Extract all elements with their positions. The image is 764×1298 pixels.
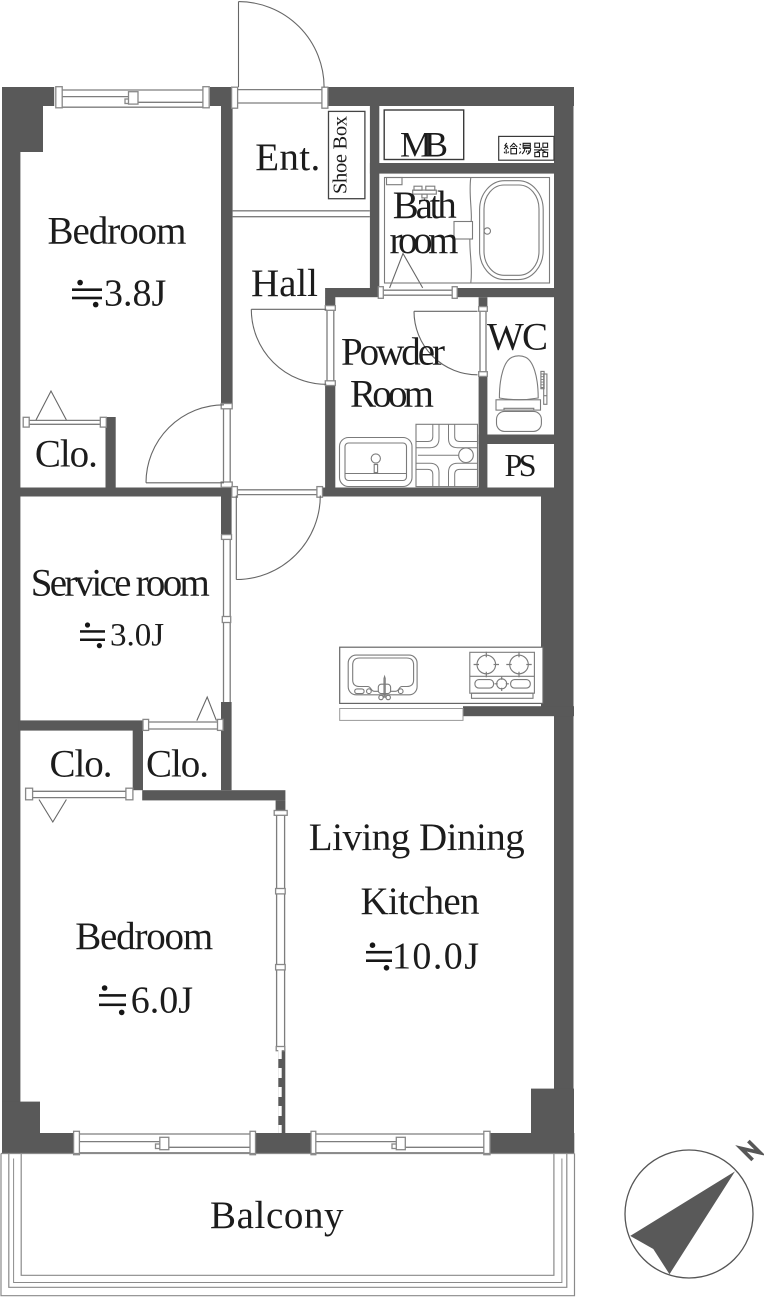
svg-text:6.0J: 6.0J <box>131 980 193 1022</box>
svg-text:Clo.: Clo. <box>146 743 209 786</box>
svg-text:Service room: Service room <box>31 562 210 605</box>
svg-text:Room: Room <box>350 372 434 415</box>
svg-text:Kitchen: Kitchen <box>361 880 480 923</box>
svg-text:Bedroom: Bedroom <box>48 210 187 253</box>
svg-text:Clo.: Clo. <box>50 743 113 786</box>
svg-text:Hall: Hall <box>251 262 318 305</box>
svg-text:Clo.: Clo. <box>35 433 98 476</box>
svg-text:Shoe Box: Shoe Box <box>330 116 352 194</box>
svg-text:10.0J: 10.0J <box>392 936 479 978</box>
svg-text:WC: WC <box>487 316 548 359</box>
svg-text:Balcony: Balcony <box>210 1194 344 1237</box>
svg-text:Powder: Powder <box>341 330 445 373</box>
svg-text:3.0J: 3.0J <box>110 618 164 654</box>
svg-text:Living Dining: Living Dining <box>309 816 525 859</box>
svg-text:room: room <box>390 219 459 262</box>
svg-text:PS: PS <box>505 447 537 483</box>
svg-text:Bedroom: Bedroom <box>75 915 213 958</box>
svg-text:MB: MB <box>400 125 448 165</box>
svg-text:Ent.: Ent. <box>255 136 320 179</box>
svg-text:3.8J: 3.8J <box>104 273 166 315</box>
